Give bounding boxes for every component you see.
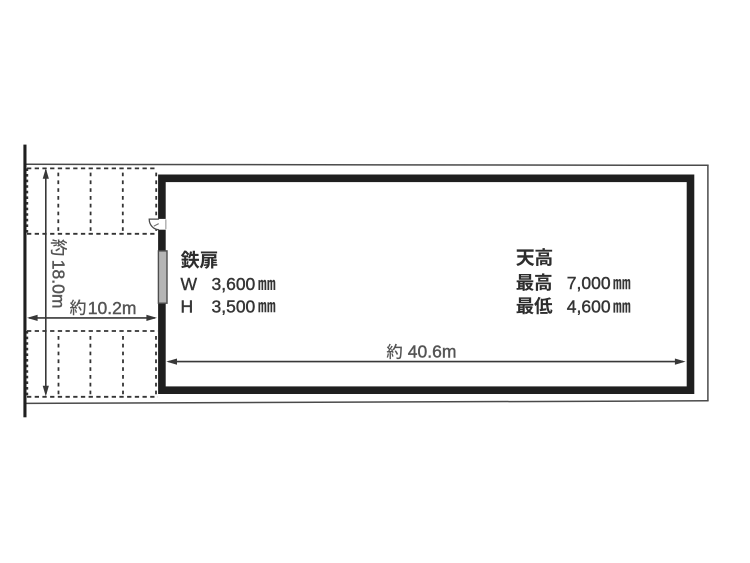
svg-text:H: H bbox=[181, 296, 194, 316]
svg-text:10.2m: 10.2m bbox=[88, 298, 137, 318]
svg-text:40.6m: 40.6m bbox=[408, 342, 457, 362]
svg-text:18.0m: 18.0m bbox=[48, 260, 68, 309]
svg-text:3,600: 3,600 bbox=[212, 274, 256, 294]
svg-text:4,600: 4,600 bbox=[567, 297, 611, 317]
svg-text:7,000: 7,000 bbox=[567, 273, 611, 293]
svg-text:W: W bbox=[181, 274, 198, 294]
svg-text:3,500: 3,500 bbox=[212, 296, 256, 316]
